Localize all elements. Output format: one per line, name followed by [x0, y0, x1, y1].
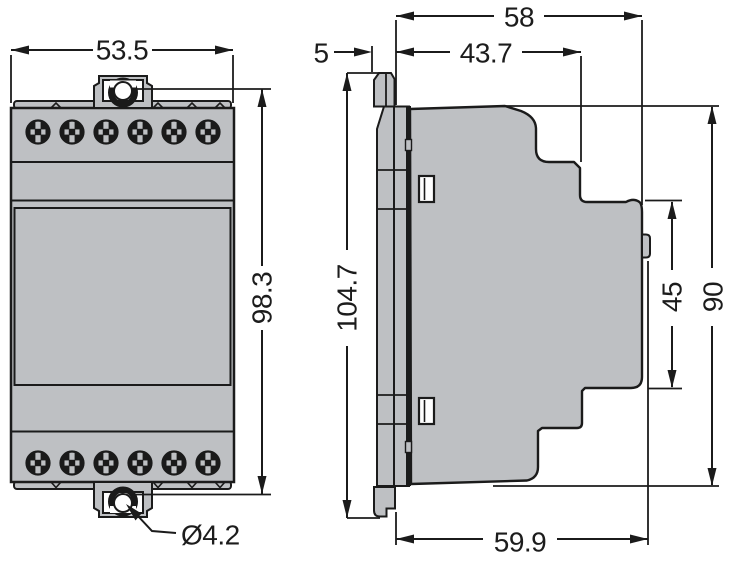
drawing-canvas: 53.5 98.3 Ø4.2 [0, 0, 754, 578]
dimension-din-recess-height: 45 [645, 201, 688, 389]
arrowhead-left-icon [396, 48, 414, 57]
dim-label-overall-depth: 58 [504, 2, 534, 33]
dim-label-upper-depth: 43.7 [460, 38, 513, 69]
arrowhead-down-icon [258, 476, 267, 494]
dim-label-din-recess-height: 45 [657, 282, 688, 312]
release-notch [406, 442, 412, 453]
arrowhead-down-icon [668, 370, 677, 388]
side-view: 58 43.7 5 104.7 [313, 2, 728, 558]
bottom-clip-side [374, 487, 395, 517]
dimension-front-lip: 5 [313, 38, 372, 73]
arrowhead-up-icon [668, 201, 677, 219]
rear-latch [642, 235, 650, 258]
dimension-overall-height: 104.7 [332, 73, 381, 518]
dim-label-front-height-side: 90 [698, 282, 729, 312]
arrowhead-down-icon [343, 500, 352, 518]
arrowhead-right-icon [624, 12, 642, 21]
top-mounting-tab [94, 76, 379, 108]
front-view: 53.5 98.3 Ø4.2 [11, 35, 379, 551]
arrowhead-up-icon [258, 89, 267, 107]
arrowhead-right-icon [630, 535, 648, 544]
arrowhead-up-icon [708, 106, 717, 124]
dim-label-front-lip: 5 [313, 38, 328, 69]
arrowhead-up-icon [343, 73, 352, 91]
clip-window-bottom [419, 398, 434, 424]
arrowhead-right-icon [215, 46, 233, 55]
arrowhead-left-icon [11, 46, 29, 55]
bottom-mounting-tab [94, 482, 152, 517]
release-notch [406, 140, 412, 151]
arrowhead-right-icon [563, 48, 581, 57]
dim-label-lower-depth: 59.9 [494, 527, 547, 558]
arrowhead-right-icon [354, 48, 372, 57]
arrowhead-down-icon [708, 468, 717, 486]
top-clip-side [374, 73, 395, 107]
dim-label-hole-diameter: Ø4.2 [181, 520, 240, 551]
side-body-profile [410, 106, 642, 484]
dimension-drawing: 53.5 98.3 Ø4.2 [0, 0, 754, 578]
clip-window-top [419, 176, 434, 202]
dim-label-front-width: 53.5 [96, 35, 149, 66]
arrowhead-left-icon [396, 535, 414, 544]
arrowhead-left-icon [396, 12, 414, 21]
dim-label-overall-height: 104.7 [332, 264, 363, 332]
mounting-hole [114, 82, 132, 100]
dim-label-front-height: 98.3 [247, 272, 278, 325]
front-panel [15, 208, 231, 385]
